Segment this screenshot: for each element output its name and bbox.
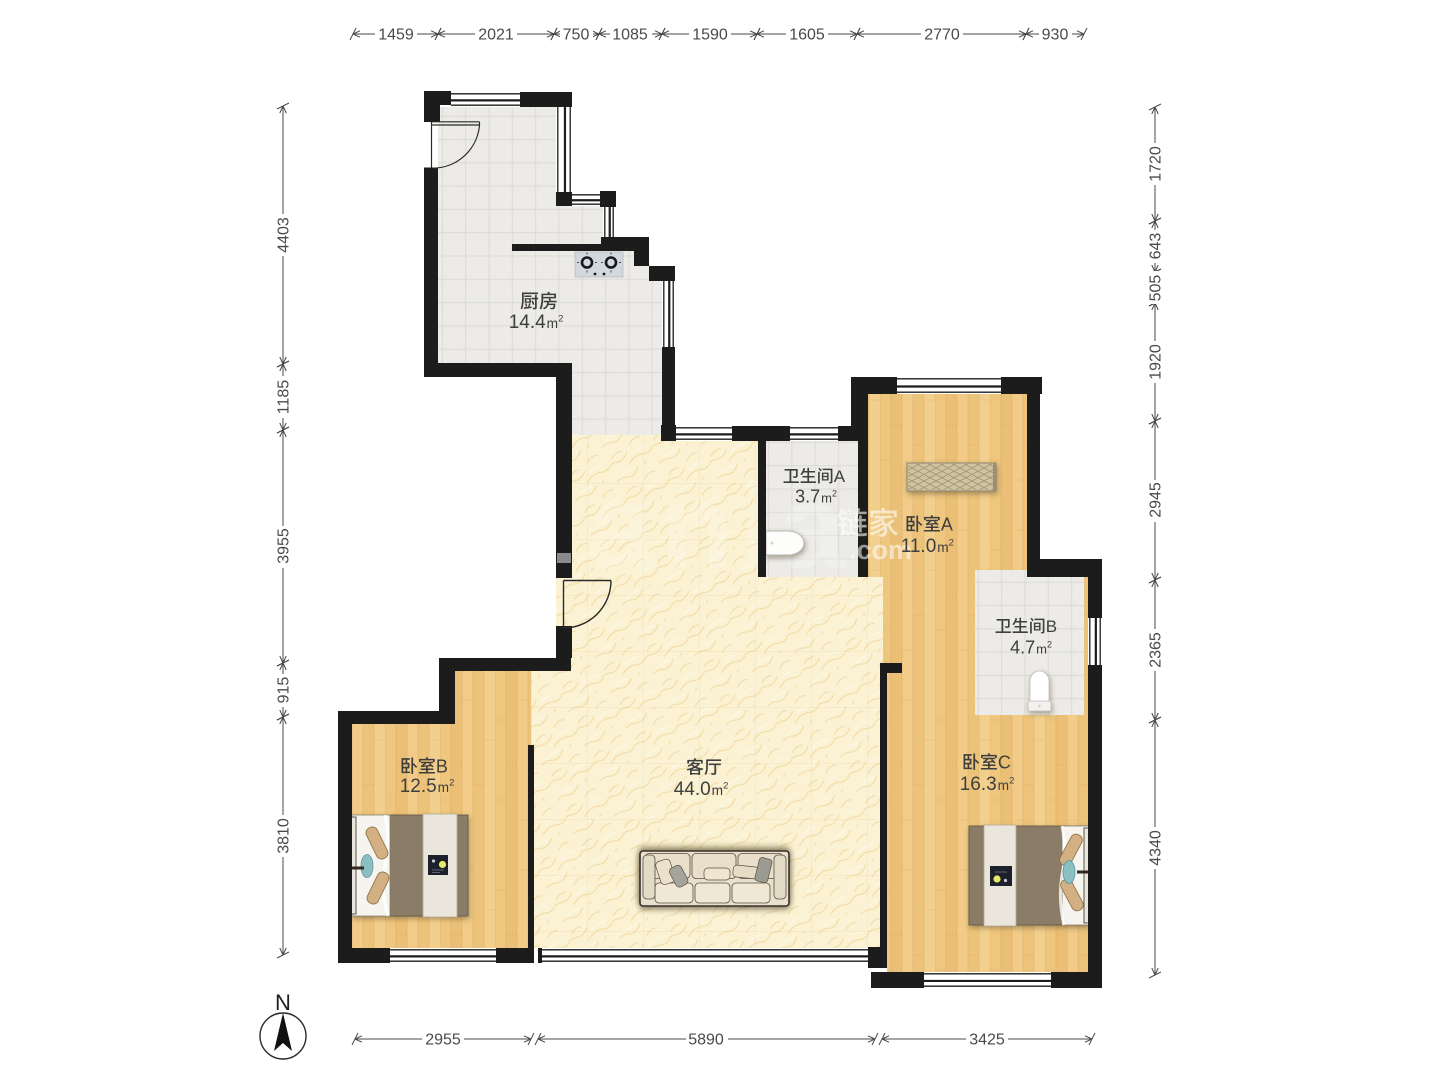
svg-text:3810: 3810 bbox=[276, 818, 293, 854]
svg-text:1720: 1720 bbox=[1148, 146, 1165, 182]
svg-text:16.3m2: 16.3m2 bbox=[960, 774, 1015, 795]
svg-text:930: 930 bbox=[1042, 27, 1069, 44]
svg-text:B: B bbox=[436, 757, 448, 777]
svg-text:C: C bbox=[998, 753, 1011, 773]
svg-text:750: 750 bbox=[563, 27, 590, 44]
svg-text:2945: 2945 bbox=[1148, 482, 1165, 518]
svg-text:11.0m2: 11.0m2 bbox=[901, 536, 954, 557]
svg-text:505: 505 bbox=[1148, 275, 1165, 302]
svg-text:1590: 1590 bbox=[692, 27, 728, 44]
svg-text:4340: 4340 bbox=[1148, 830, 1165, 866]
svg-text:2365: 2365 bbox=[1148, 632, 1165, 668]
svg-text:N: N bbox=[275, 990, 291, 1015]
svg-text:5890: 5890 bbox=[688, 1032, 724, 1049]
svg-text:2021: 2021 bbox=[478, 27, 514, 44]
svg-text:lania: lania bbox=[548, 460, 851, 594]
svg-text:2770: 2770 bbox=[924, 27, 960, 44]
svg-text:643: 643 bbox=[1148, 233, 1165, 260]
svg-text:14.4m2: 14.4m2 bbox=[509, 312, 564, 333]
svg-text:2955: 2955 bbox=[425, 1032, 461, 1049]
svg-text:3955: 3955 bbox=[276, 528, 293, 564]
svg-text:3425: 3425 bbox=[969, 1032, 1005, 1049]
svg-text:B: B bbox=[1046, 617, 1057, 636]
svg-text:915: 915 bbox=[276, 677, 293, 704]
svg-text:12.5m2: 12.5m2 bbox=[400, 776, 455, 797]
svg-text:1920: 1920 bbox=[1148, 344, 1165, 380]
svg-text:1605: 1605 bbox=[789, 27, 825, 44]
svg-text:44.0m2: 44.0m2 bbox=[674, 779, 729, 800]
svg-text:A: A bbox=[834, 467, 846, 486]
svg-text:1459: 1459 bbox=[378, 27, 414, 44]
svg-text:A: A bbox=[941, 515, 953, 535]
svg-text:1185: 1185 bbox=[276, 380, 293, 415]
svg-text:4403: 4403 bbox=[276, 217, 293, 253]
svg-text:1085: 1085 bbox=[612, 27, 648, 44]
